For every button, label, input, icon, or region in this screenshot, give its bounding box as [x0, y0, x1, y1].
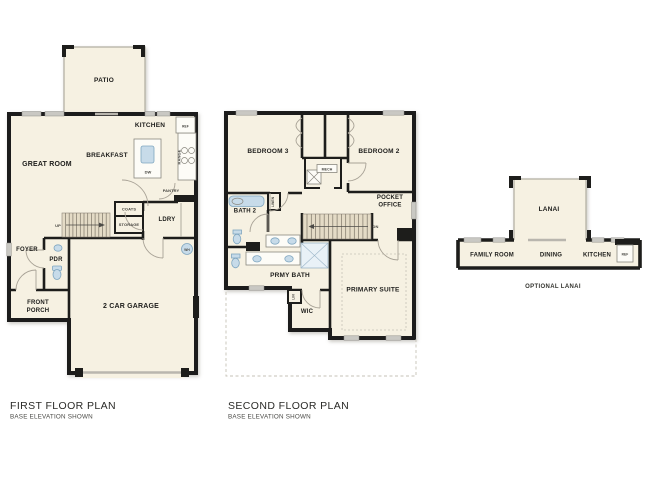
label-garage: 2 CAR GARAGE — [103, 303, 159, 310]
label-bath2: BATH 2 — [234, 209, 257, 215]
floor-plan-sheet: PATIO KITCHEN BREAKFAST GREAT ROOM LDRY … — [0, 0, 650, 488]
second-floor-title: SECOND FLOOR PLAN — [228, 400, 349, 412]
label-lanai: LANAI — [539, 206, 560, 213]
pantry-wall — [174, 195, 196, 202]
label-bedroom2: BEDROOM 2 — [358, 148, 399, 155]
garage-side-wall-post — [193, 296, 199, 318]
label-foyer: FOYER — [16, 247, 38, 253]
label-ldry: LDRY — [159, 217, 176, 223]
stairs-second-floor — [303, 214, 371, 239]
label-great-room: GREAT ROOM — [22, 161, 72, 168]
label-pdr: PDR — [49, 257, 63, 263]
label-lin: LIN — [292, 294, 296, 300]
label-mech: MECH — [322, 167, 333, 171]
label-dn: DN — [373, 224, 379, 229]
label-pocket-office-1: POCKET — [377, 195, 403, 201]
label-breakfast: BREAKFAST — [86, 152, 128, 159]
second-floor-subtitle: BASE ELEVATION SHOWN — [228, 414, 311, 421]
kitchen-corner-wall — [615, 239, 640, 245]
label-front-porch-2: PORCH — [27, 308, 50, 314]
label-family-room: FAMILY ROOM — [470, 253, 514, 259]
pdr-sink — [54, 245, 62, 251]
label-pantry: PANTRY — [163, 188, 180, 193]
label-kitchen: KITCHEN — [135, 122, 165, 129]
label-lanai-ref: REF — [622, 253, 629, 257]
label-up: UP — [55, 223, 61, 228]
optional-lanai-caption: OPTIONAL LANAI — [525, 284, 581, 290]
garage-door — [75, 368, 189, 378]
label-dw: DW — [145, 170, 152, 175]
first-floor-title: FIRST FLOOR PLAN — [10, 400, 116, 412]
bath-wall-stub — [246, 242, 260, 251]
label-prmy-bath: PRMY BATH — [270, 272, 310, 279]
floor-plan-drawing: PATIO KITCHEN BREAKFAST GREAT ROOM LDRY … — [0, 0, 650, 488]
first-floor-plan: PATIO KITCHEN BREAKFAST GREAT ROOM LDRY … — [7, 45, 199, 421]
label-wic: WIC — [301, 309, 314, 315]
optional-lanai-plan: LANAI FAMILY ROOM DINING KITCHEN REF OPT… — [458, 176, 640, 290]
bath2-tub — [229, 196, 264, 207]
label-storage: STORAGE — [119, 222, 140, 227]
pocket-office-desk — [397, 228, 414, 241]
label-primary-suite: PRIMARY SUITE — [346, 287, 400, 294]
bath2-toilet — [233, 234, 241, 244]
second-floor-plan: BEDROOM 3 BEDROOM 2 BATH 2 POCKET OFFICE… — [226, 111, 416, 421]
label-lanai-kitchen: KITCHEN — [583, 253, 611, 259]
label-range: RANGE — [177, 149, 182, 164]
label-bedroom3: BEDROOM 3 — [247, 148, 288, 155]
label-linen: LINEN — [271, 196, 275, 207]
label-wh: WH — [184, 248, 190, 252]
stairs-first-floor — [62, 213, 110, 237]
label-patio: PATIO — [94, 77, 114, 84]
first-floor-subtitle: BASE ELEVATION SHOWN — [10, 414, 93, 421]
kitchen-sink — [141, 146, 154, 163]
label-ref: REF — [182, 125, 189, 129]
mech-closet — [305, 158, 341, 190]
primary-toilet — [232, 258, 240, 268]
label-dining: DINING — [540, 253, 562, 259]
label-pocket-office-2: OFFICE — [378, 203, 401, 209]
label-coats: COATS — [122, 207, 136, 212]
label-front-porch-1: FRONT — [27, 300, 49, 306]
pdr-toilet — [53, 270, 61, 280]
